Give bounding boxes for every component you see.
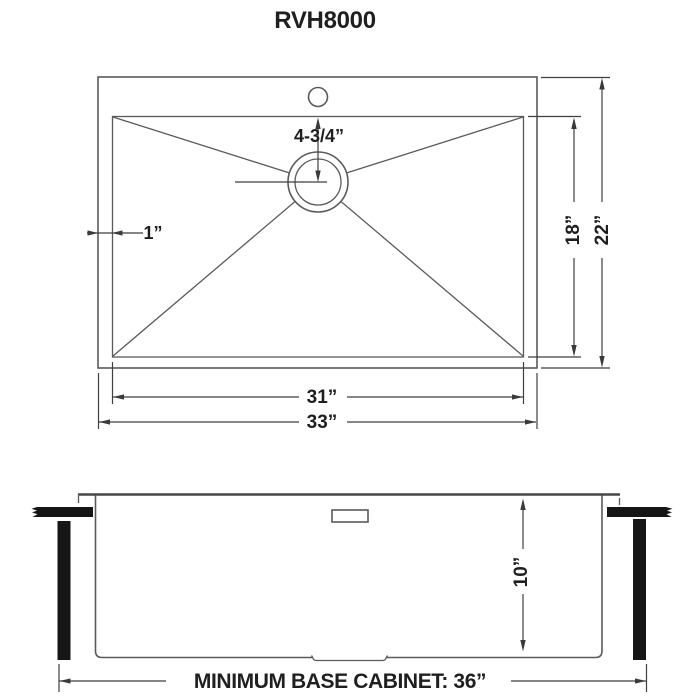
bowl-slope-line [318, 182, 523, 356]
arrow-left-icon [60, 678, 71, 683]
bowl-slope-line [113, 182, 318, 356]
base-cabinet-label: MINIMUM BASE CABINET: 36” [164, 671, 516, 692]
cabinet-wall-left [58, 521, 71, 660]
arrow-right-icon [635, 678, 646, 683]
sink-spec-diagram: RVH8000 4-3/4” 1” 18” 22” 31” 33” 10” MI… [0, 0, 700, 700]
cabinet-wall-right [633, 519, 646, 660]
arrow-right-icon [525, 419, 536, 424]
bowl-width-label: 31” [272, 388, 372, 407]
countertop-section-left [32, 507, 94, 517]
overall-width-label: 33” [272, 413, 372, 432]
arrow-right-icon [512, 394, 523, 399]
side-view [32, 494, 673, 692]
arrow-left-icon [112, 230, 123, 235]
arrow-left-icon [99, 419, 110, 424]
rim-width-label: 1” [133, 224, 173, 242]
drain-recess [312, 656, 388, 661]
overall-depth-label: 22” [593, 200, 611, 260]
technical-drawing [0, 0, 700, 700]
countertop-section-right [607, 507, 673, 517]
arrow-up-icon [599, 78, 604, 90]
arrow-right-icon [88, 230, 99, 235]
drain-offset-label: 4-3/4” [269, 127, 369, 145]
arrow-down-icon [599, 356, 604, 368]
model-title: RVH8000 [225, 9, 425, 33]
bowl-depth-label: 18” [564, 200, 582, 260]
faucet-hole [309, 88, 328, 107]
faucet-hole-section [332, 510, 368, 522]
arrow-down-icon [571, 345, 576, 357]
arrow-up-icon [571, 118, 576, 130]
bowl-height-label: 10” [512, 542, 530, 602]
arrow-left-icon [113, 394, 124, 399]
